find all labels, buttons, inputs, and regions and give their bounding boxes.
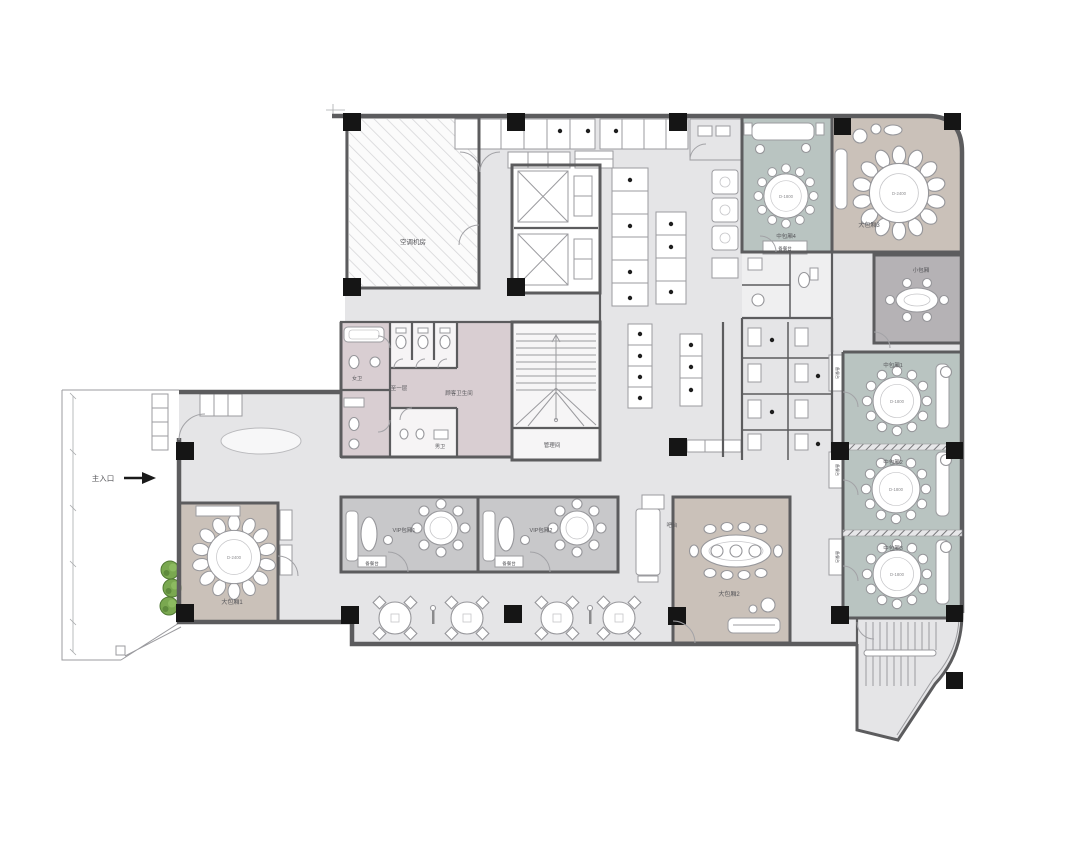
label-table-d1800-m2: D-1800 bbox=[889, 487, 904, 492]
label-room-large-1: 大包厢1 bbox=[221, 598, 243, 606]
label-table-d2400-large3: D-2400 bbox=[892, 191, 907, 196]
label-room-medium-2: 中包厢2 bbox=[883, 458, 903, 466]
entrance-arrow-icon bbox=[142, 472, 156, 484]
label-room-medium-3: 中包厢3 bbox=[883, 544, 903, 552]
label-management: 管理间 bbox=[544, 441, 561, 449]
label-room-large-3: 大包厢3 bbox=[858, 221, 880, 229]
label-table-d1800-m3: D-1800 bbox=[890, 572, 905, 577]
label-ac-room: 空调机房 bbox=[400, 237, 426, 246]
label-table-d2400-large1: D-2400 bbox=[227, 555, 242, 560]
reception-cabinet bbox=[200, 394, 242, 416]
label-side-station-m4: 备餐台 bbox=[778, 245, 792, 252]
label-customer-wc: 顾客卫生间 bbox=[445, 389, 473, 397]
label-side-station-m1: 备餐台 bbox=[835, 367, 841, 379]
label-side-station-m3: 备餐台 bbox=[835, 551, 841, 563]
label-room-medium-1: 中包厢1 bbox=[883, 361, 903, 369]
label-bar: 吧台 bbox=[666, 521, 678, 529]
label-room-vip-1: VIP包厢1 bbox=[393, 526, 416, 534]
label-table-d1800-m1: D-1800 bbox=[890, 399, 905, 404]
floor-plan-canvas: 主入口 空调机房 至一层 顾客卫生间 女卫 男卫 管理间 吧台 大包厢1 大包厢… bbox=[0, 0, 1080, 861]
label-side-station-m2: 备餐台 bbox=[835, 464, 841, 476]
label-side-station-vip1: 备餐台 bbox=[365, 560, 379, 567]
main-entrance-marker bbox=[124, 472, 156, 484]
label-table-d1800-m4: D-1800 bbox=[779, 194, 794, 199]
label-female-wc: 女卫 bbox=[352, 375, 362, 382]
label-room-large-2: 大包厢2 bbox=[718, 590, 740, 598]
label-male-wc: 男卫 bbox=[435, 444, 445, 450]
floor-plan: 主入口 空调机房 至一层 顾客卫生间 女卫 男卫 管理间 吧台 大包厢1 大包厢… bbox=[0, 0, 1080, 861]
bar-back-counter bbox=[642, 495, 664, 509]
label-side-station-vip2: 备餐台 bbox=[502, 560, 516, 567]
label-room-medium-4: 中包厢4 bbox=[776, 232, 796, 240]
bar-counter bbox=[636, 509, 660, 575]
lobby-rug bbox=[221, 428, 301, 454]
label-room-vip-2: VIP包厢2 bbox=[530, 526, 553, 534]
label-main-entrance: 主入口 bbox=[92, 473, 115, 483]
label-room-small-1: 小包厢 bbox=[913, 266, 930, 274]
label-to-first-floor: 至一层 bbox=[391, 385, 408, 392]
